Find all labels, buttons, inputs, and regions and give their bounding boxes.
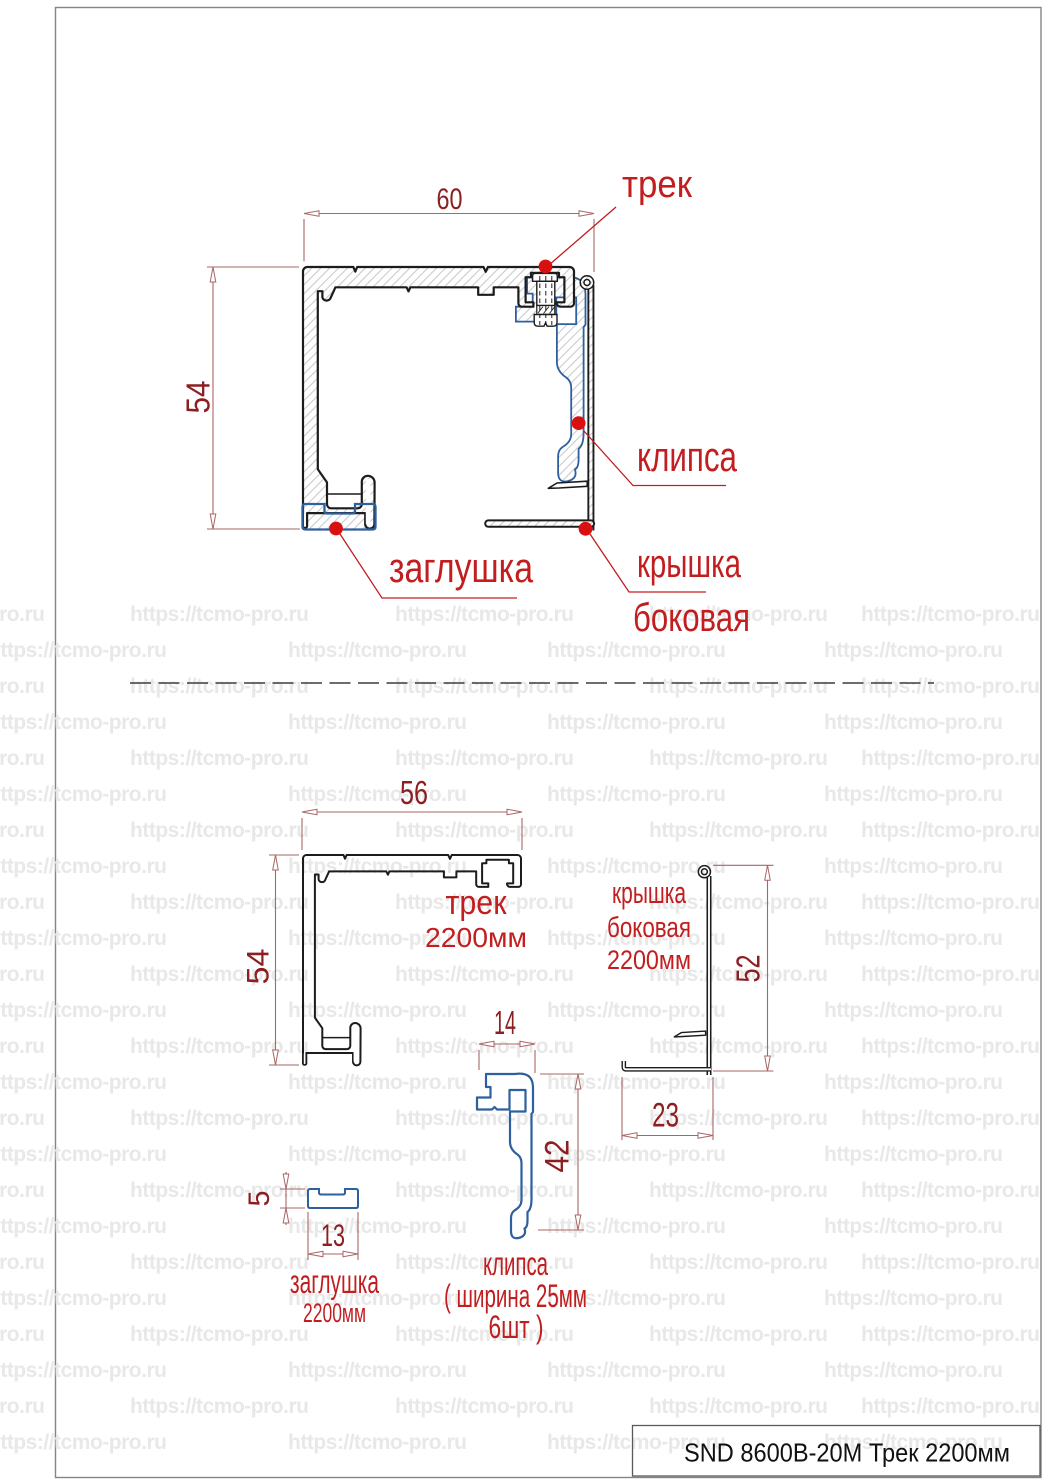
svg-text:13: 13 — [321, 1217, 345, 1253]
svg-text:5: 5 — [243, 1191, 276, 1207]
svg-text:2200мм: 2200мм — [425, 922, 527, 953]
svg-text:крышка: крышка — [637, 542, 742, 586]
svg-text:14: 14 — [494, 1004, 516, 1041]
svg-text:заглушка: заглушка — [389, 544, 534, 591]
svg-text:клипса: клипса — [483, 1245, 548, 1282]
svg-text:боковая: боковая — [607, 912, 691, 944]
svg-text:54: 54 — [240, 949, 276, 985]
svg-text:трек: трек — [446, 884, 508, 922]
svg-text:56: 56 — [400, 774, 428, 811]
svg-text:крышка: крышка — [612, 875, 687, 910]
svg-text:заглушка: заглушка — [290, 1263, 379, 1300]
svg-text:54: 54 — [180, 381, 217, 414]
svg-text:60: 60 — [437, 183, 463, 216]
svg-text:трек: трек — [622, 164, 692, 206]
svg-text:52: 52 — [730, 955, 767, 983]
svg-text:2200мм: 2200мм — [303, 1298, 366, 1328]
svg-text:23: 23 — [652, 1097, 679, 1135]
svg-text:SND 8600B-20M Трек 2200мм: SND 8600B-20M Трек 2200мм — [684, 1438, 1010, 1468]
svg-text:6шт ): 6шт ) — [489, 1309, 544, 1345]
svg-text:боковая: боковая — [633, 596, 750, 640]
svg-text:42: 42 — [539, 1140, 577, 1173]
svg-text:клипса: клипса — [637, 433, 737, 480]
svg-text:2200мм: 2200мм — [607, 945, 691, 975]
